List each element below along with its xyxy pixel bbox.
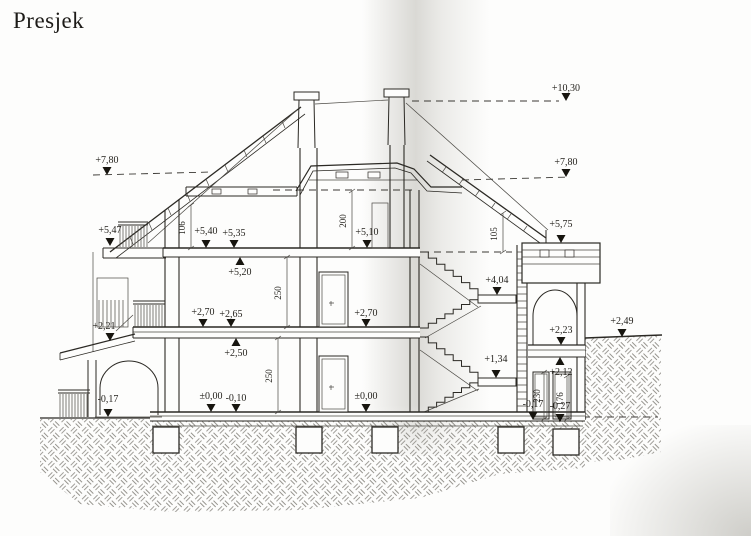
ground-hatch-right (585, 335, 661, 462)
scan-shadow-band (362, 0, 490, 456)
svg-text:-0,27: -0,27 (550, 401, 571, 412)
balcony-railing-rail (133, 301, 165, 304)
level-label-minus-0-17-left: -0,17 (98, 394, 119, 417)
door-upper (319, 272, 348, 327)
svg-text:-0,17: -0,17 (523, 399, 544, 410)
svg-text:+5,35: +5,35 (222, 228, 245, 239)
svg-text:-0,17: -0,17 (98, 394, 119, 405)
svg-text:±0,00: ±0,00 (200, 391, 223, 402)
level-triangle-icon (199, 319, 208, 327)
dim-label: 106 (177, 221, 187, 235)
section-drawing: 106 200 250 250 105 230 176 +10,30 +7,80 (0, 0, 751, 536)
exterior-railing-rail (58, 390, 90, 393)
stair-landing-upper (478, 295, 516, 303)
level-label-plus-5-40: +5,40 (194, 226, 217, 248)
attic-railing-rail (118, 222, 148, 225)
level-triangle-icon (557, 235, 566, 243)
level-label-plus-7-80-left: +7,80 (95, 155, 118, 175)
svg-text:+2,49: +2,49 (610, 316, 633, 327)
level-label-plus-2-70-left: +2,70 (191, 307, 214, 327)
balcony-railing-bars (135, 305, 162, 327)
svg-text:+5,20: +5,20 (228, 267, 251, 278)
svg-text:+10,30: +10,30 (552, 83, 580, 94)
svg-text:+2,50: +2,50 (224, 348, 247, 359)
level-triangle-icon (104, 409, 113, 417)
balcony-slab-right (528, 345, 585, 357)
svg-text:+5,40: +5,40 (194, 226, 217, 237)
level-triangle-icon (232, 404, 241, 412)
mid-floor-slab (133, 327, 420, 338)
level-label-plus-2-65: +2,65 (219, 309, 242, 327)
svg-text:+2,70: +2,70 (354, 308, 377, 319)
porch-arch (100, 361, 158, 415)
svg-text:+7,80: +7,80 (95, 155, 118, 166)
level-triangle-up-icon (556, 357, 565, 365)
svg-text:±0,00: ±0,00 (355, 391, 378, 402)
dim-label: 250 (264, 369, 274, 383)
level-triangle-up-icon (236, 257, 245, 265)
svg-text:+5,47: +5,47 (98, 225, 121, 236)
attic-floor-slab (163, 248, 420, 257)
level-label-plus-5-47: +5,47 (98, 225, 121, 246)
dim-label: 105 (489, 227, 499, 241)
stair-landing-lower (478, 378, 516, 386)
level-label-plus-7-80-right: +7,80 (554, 157, 577, 177)
svg-text:+5,75: +5,75 (549, 219, 572, 230)
level-triangle-icon (557, 337, 566, 345)
level-triangle-icon (202, 240, 211, 248)
level-triangle-icon (103, 167, 112, 175)
level-label-plus-2-12: +2,12 (549, 357, 572, 378)
level-label-plus-2-50: +2,50 (224, 338, 247, 359)
svg-text:+1,34: +1,34 (484, 354, 507, 365)
svg-text:-0,10: -0,10 (226, 393, 247, 404)
scanned-drawing-page: Presjek (0, 0, 751, 536)
wall-mid (300, 148, 317, 412)
level-triangle-icon (562, 169, 571, 177)
level-triangle-icon (230, 240, 239, 248)
dim-label: 200 (338, 214, 348, 228)
level-label-plus-5-20: +5,20 (228, 257, 251, 278)
attic-railing-bars (120, 226, 147, 247)
right-eave-box (522, 243, 600, 283)
level-label-plus-2-21: +2,21 (92, 315, 133, 341)
svg-text:+2,12: +2,12 (549, 367, 572, 378)
exterior-railing-bars (60, 394, 87, 417)
level-label-plus-2-23: +2,23 (549, 325, 572, 345)
level-label-plus-2-49: +2,49 (610, 316, 633, 337)
level-triangle-icon (106, 238, 115, 246)
level-triangle-up-icon (232, 338, 241, 346)
level-label-minus-0-10: -0,10 (226, 393, 247, 412)
svg-text:+4,04: +4,04 (485, 275, 508, 286)
door-lower (319, 356, 348, 412)
level-triangle-icon (493, 287, 502, 295)
svg-text:+7,80: +7,80 (554, 157, 577, 168)
svg-text:+2,21: +2,21 (92, 321, 115, 332)
svg-text:+2,23: +2,23 (549, 325, 572, 336)
roof-hip-left (148, 110, 297, 243)
svg-text:+2,70: +2,70 (191, 307, 214, 318)
level-label-plus-5-35: +5,35 (222, 228, 245, 248)
level-triangle-icon (562, 93, 571, 101)
level-triangle-icon (492, 370, 501, 378)
porch-column (88, 360, 96, 417)
level-label-plus-10-30: +10,30 (552, 83, 580, 101)
level-label-zero-left: ±0,00 (200, 391, 223, 412)
level-triangle-icon (227, 319, 236, 327)
level-triangle-icon (207, 404, 216, 412)
svg-text:+2,65: +2,65 (219, 309, 242, 320)
loggia-arch (533, 290, 577, 345)
level-label-plus-5-75: +5,75 (549, 219, 572, 243)
dashed-7-80-left (93, 172, 212, 175)
dim-label: 250 (273, 286, 283, 300)
ground-floor-slab (150, 412, 585, 421)
svg-text:+5,10: +5,10 (355, 227, 378, 238)
